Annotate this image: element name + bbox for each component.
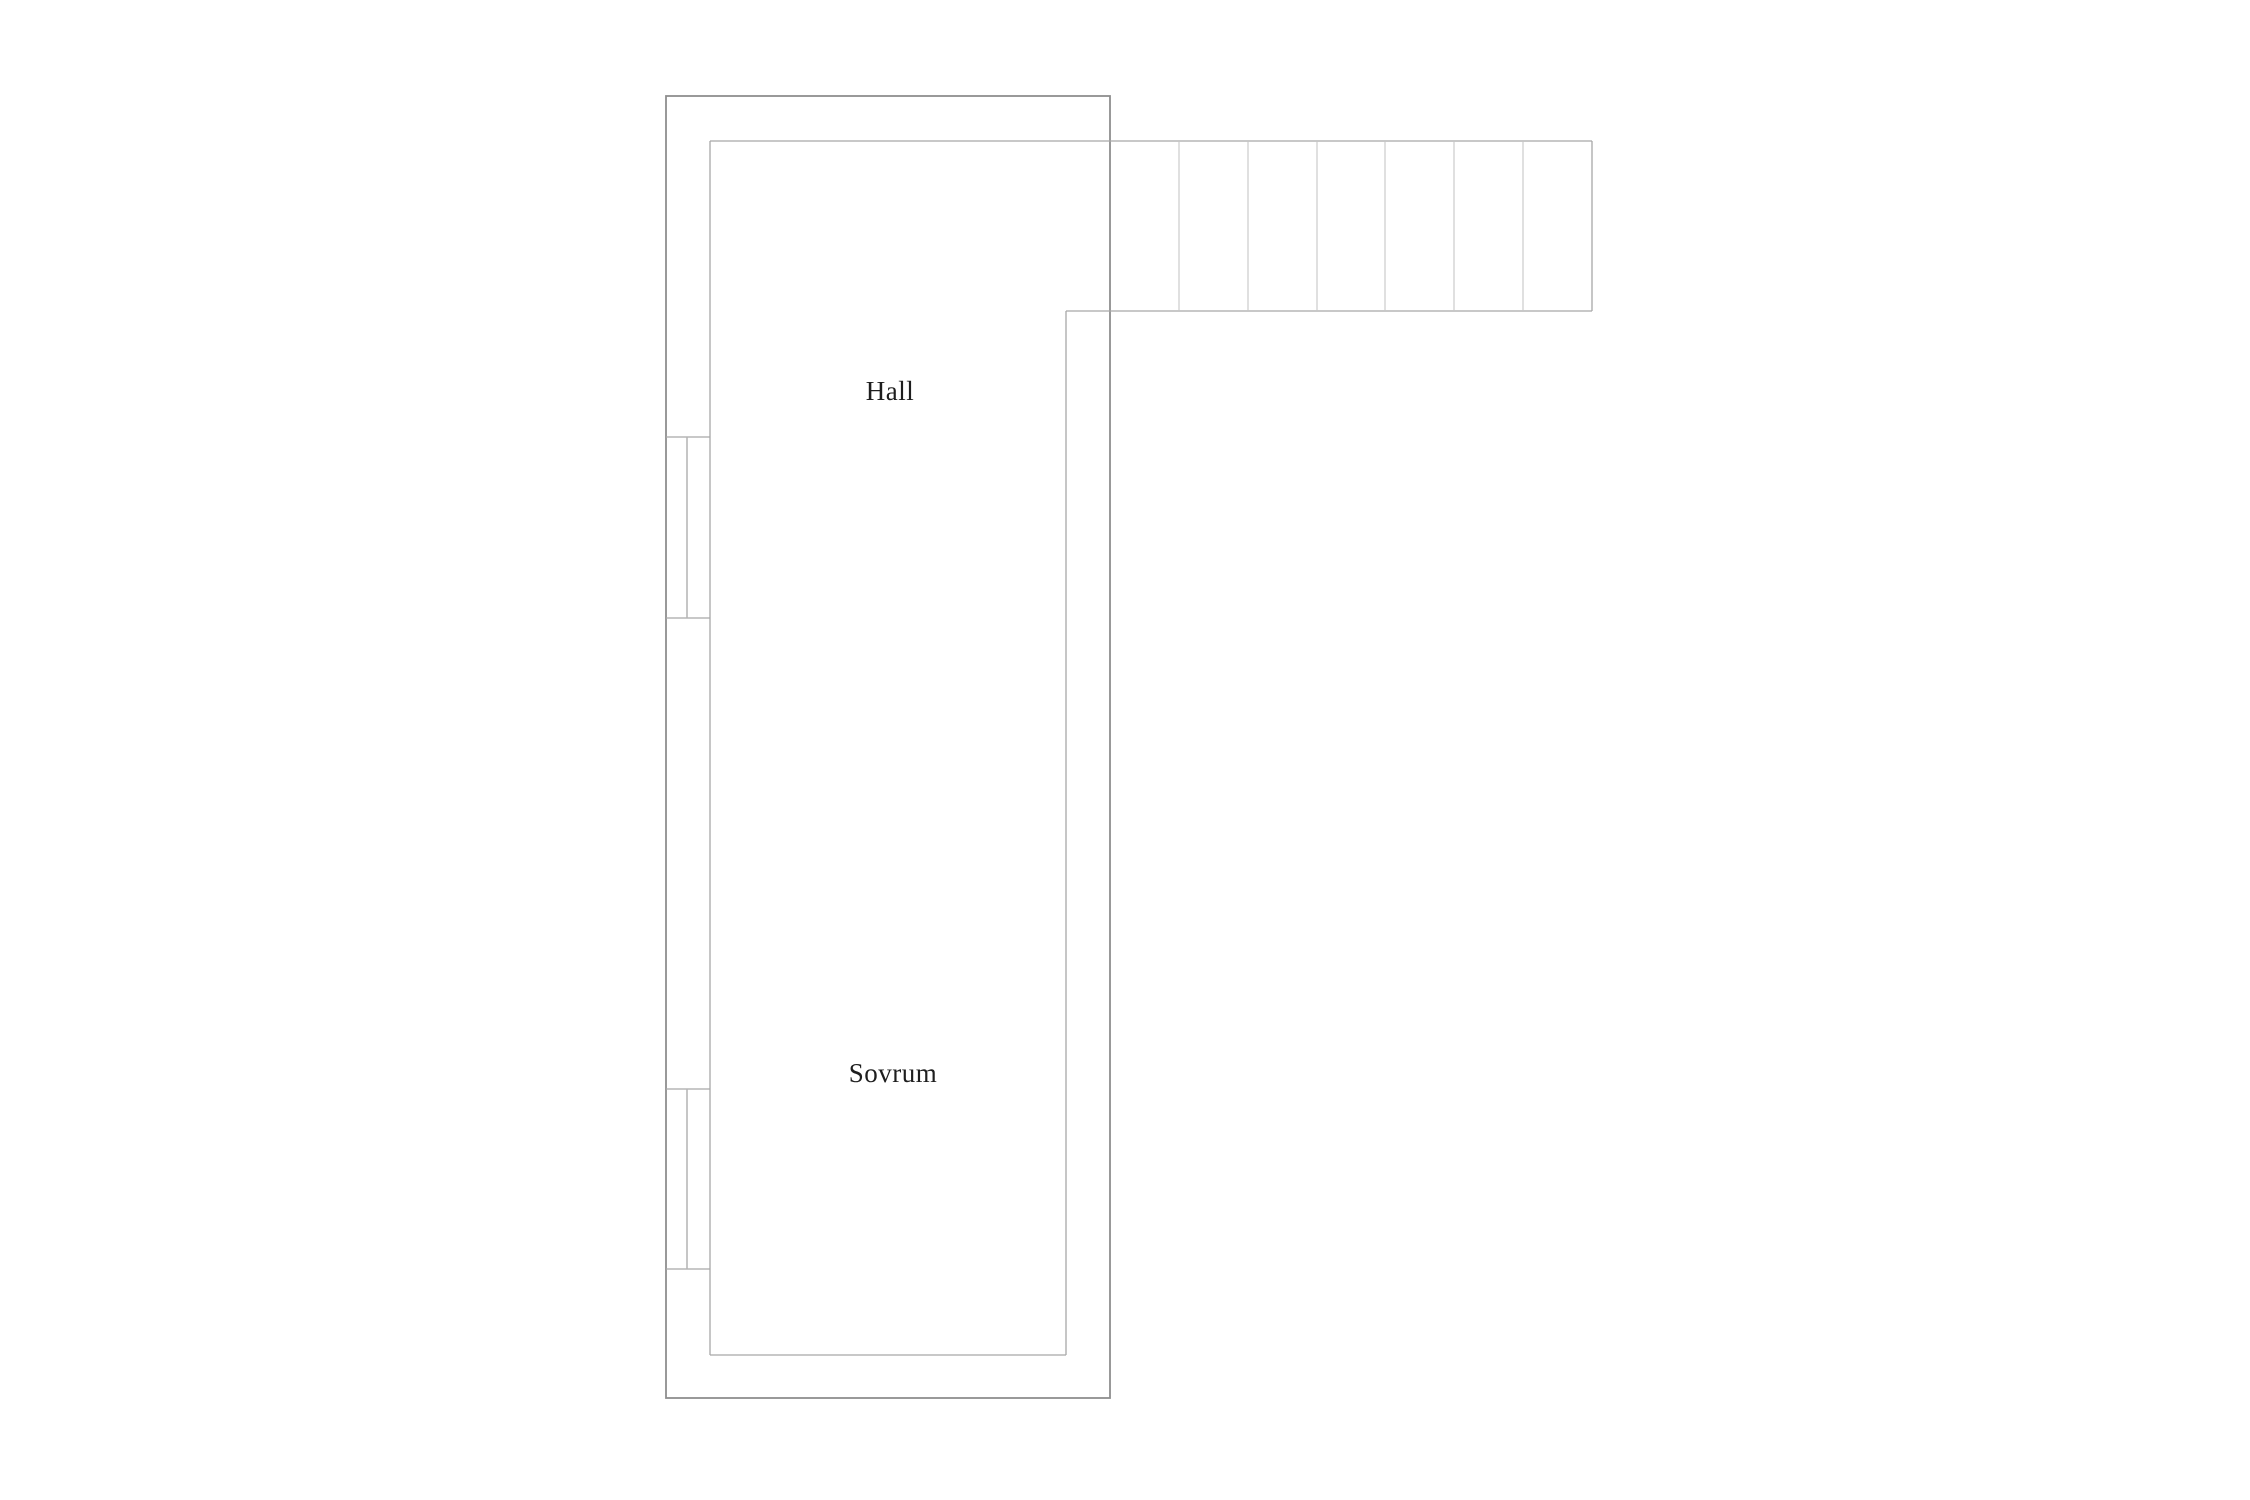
- room-labels-group: HallSovrum: [849, 376, 938, 1088]
- floor-plan-page: HallSovrum: [0, 0, 2250, 1500]
- wall-lines-group: [666, 141, 1592, 1355]
- outer-wall-outline: [666, 96, 1110, 1398]
- room-label-hall: Hall: [866, 376, 915, 406]
- floor-plan-drawing: HallSovrum: [0, 0, 2250, 1500]
- room-label-sovrum: Sovrum: [849, 1058, 938, 1088]
